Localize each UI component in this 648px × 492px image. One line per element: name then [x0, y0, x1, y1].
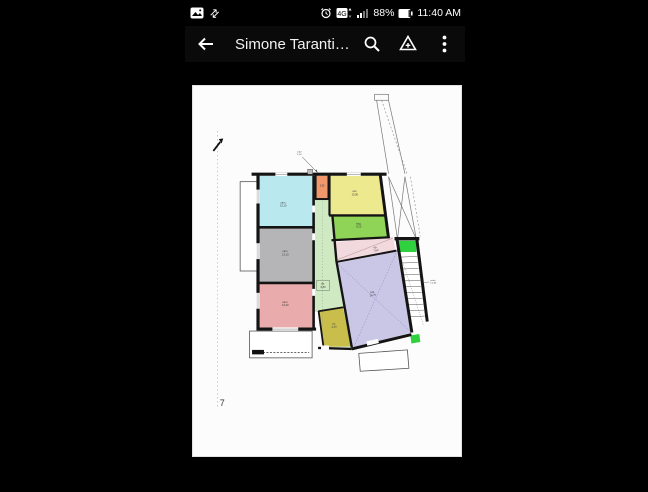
floorplan-drawing: 7 [193, 86, 461, 456]
balcony-bottom-left [250, 331, 313, 358]
svg-text:9,80: 9,80 [321, 285, 327, 289]
svg-text:h 2,60: h 2,60 [430, 283, 437, 285]
app-bar: Simone Taranti… [185, 26, 465, 62]
svg-text:2,00: 2,00 [297, 151, 302, 153]
overflow-dots-icon [442, 35, 447, 53]
battery-percent: 88% [373, 7, 394, 19]
search-button[interactable] [361, 33, 383, 55]
add-to-drive-button[interactable] [397, 33, 419, 55]
svg-text:15,10: 15,10 [280, 204, 287, 208]
status-right-icons: 4G 88% 11:40 AM [320, 7, 461, 19]
back-button[interactable] [193, 31, 219, 57]
overflow-menu-button[interactable] [433, 33, 455, 55]
svg-text:scala: scala [430, 280, 436, 282]
battery-icon [398, 8, 413, 19]
svg-text:13,10: 13,10 [282, 252, 289, 256]
svg-text:1,10: 1,10 [297, 154, 302, 156]
search-icon [363, 35, 381, 53]
chimney-mark [308, 169, 313, 174]
phone-screen: ⇄ 4G 88% [185, 0, 465, 492]
sync-icon: ⇄ [207, 5, 223, 21]
gallery-icon [190, 7, 204, 19]
floorplan-page[interactable]: 7 [192, 85, 462, 457]
stair-exit [410, 334, 420, 343]
balcony-bottom-right [359, 350, 409, 371]
back-arrow-icon [197, 36, 215, 52]
svg-text:4,30: 4,30 [331, 325, 337, 329]
screenshot-root: ⇄ 4G 88% [0, 0, 648, 492]
svg-text:13,90: 13,90 [352, 192, 359, 196]
sheet-number: 7 [220, 398, 225, 408]
status-bar: ⇄ 4G 88% [185, 0, 465, 26]
svg-text:4G: 4G [338, 11, 347, 18]
document-title: Simone Taranti… [235, 36, 350, 53]
clock: 11:40 AM [417, 7, 461, 19]
drive-add-icon [398, 35, 418, 53]
status-left-icons: ⇄ [190, 7, 219, 20]
svg-text:3,50: 3,50 [320, 185, 325, 188]
image-viewer[interactable]: 7 [185, 62, 465, 492]
alarm-icon [320, 7, 332, 19]
svg-text:12,40: 12,40 [282, 303, 289, 307]
signal-icon [357, 7, 369, 19]
network-4g-icon: 4G [336, 7, 353, 19]
north-arrow-icon [213, 138, 223, 150]
svg-text:8,20: 8,20 [356, 225, 362, 229]
